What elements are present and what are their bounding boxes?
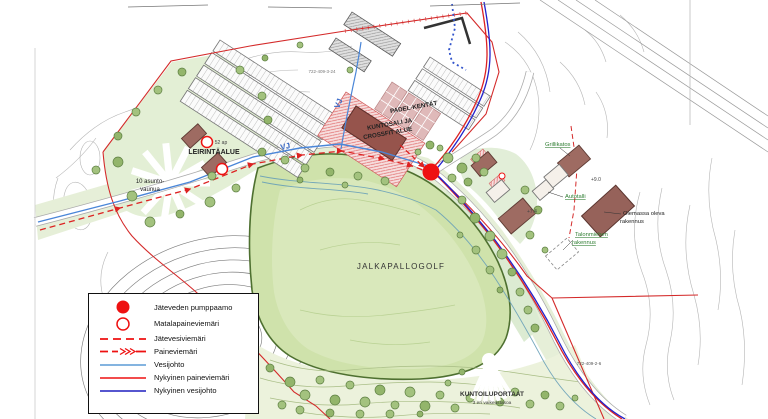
legend-item: Paineviemäri (97, 345, 254, 358)
existing-building-label2: rakennus (620, 219, 644, 225)
low-pressure-sewer-symbol (499, 173, 505, 179)
legend-item-label: Nykyinen paineviemäri (149, 373, 229, 382)
legend-item-label: Matalapaineviemäri (149, 319, 219, 328)
legend-item: Jätevesiviemäri (97, 332, 254, 345)
legend-box: Jäteveden pumppaamo Matalapaineviemäri J… (88, 293, 259, 414)
legend-item-label: Jätevesiviemäri (149, 334, 206, 343)
parcel-number-2: 722-409-2-6 (577, 361, 602, 366)
pump-station-legend-icon (97, 299, 149, 315)
garage-label: Autotalli (565, 194, 586, 200)
fitness-stairs-sublabel: 3 eri vaikeustasoa (473, 400, 512, 406)
grill-shelter-label: Grillikatos (545, 142, 571, 148)
camping-area-label: LEIRINTÄALUE (188, 148, 240, 156)
low-pressure-sewer-legend-icon (97, 316, 149, 332)
low-pressure-sewer-symbol (217, 164, 228, 175)
legend-item: Vesijohto (97, 358, 254, 371)
sewer-line-legend-icon (97, 335, 149, 343)
existing-pressure-sewer-legend-icon (97, 375, 149, 381)
legend-item: Matalapaineviemäri (97, 316, 254, 333)
legend-item: Nykyinen vesijohto (97, 384, 254, 397)
caretaker-building-label2: rakennus (572, 240, 596, 246)
water-line-legend-icon (97, 362, 149, 368)
legend-item-label: Jäteveden pumppaamo (149, 303, 232, 312)
caretaker-building-label1: Talonmiehen (575, 232, 608, 238)
pump-station-symbol (423, 164, 440, 181)
pressure-sewer-legend-icon (97, 347, 149, 356)
parcel-number-1: 722-409-3-24 (308, 69, 336, 74)
low-pressure-sewer-symbol (202, 137, 213, 148)
parking-capacity-label: 52 ap (215, 140, 228, 146)
fitness-stairs-label: KUNTOILUPORTAAT (460, 391, 524, 398)
site-plan-page: LEIRINTÄALUE 10 asunto- vaunua 52 ap PAD… (0, 0, 768, 419)
caravan-count-label: 10 asunto- (136, 179, 164, 185)
football-golf-label: JALKAPALLOGOLF (357, 262, 445, 271)
caravan-count-label2: vaunua (140, 187, 160, 193)
existing-water-line-legend-icon (97, 388, 149, 394)
legend-item-label: Paineviemäri (149, 347, 197, 356)
legend-item: Nykyinen paineviemäri (97, 371, 254, 384)
legend-item: Jäteveden pumppaamo (97, 299, 254, 316)
elevation-label-90: +9.0 (591, 177, 601, 183)
existing-building-label1: Olemassa oleva (623, 211, 665, 217)
legend-item-label: Nykyinen vesijohto (149, 386, 217, 395)
elevation-label-74: +7.4 (527, 209, 537, 215)
legend-item-label: Vesijohto (149, 360, 184, 369)
